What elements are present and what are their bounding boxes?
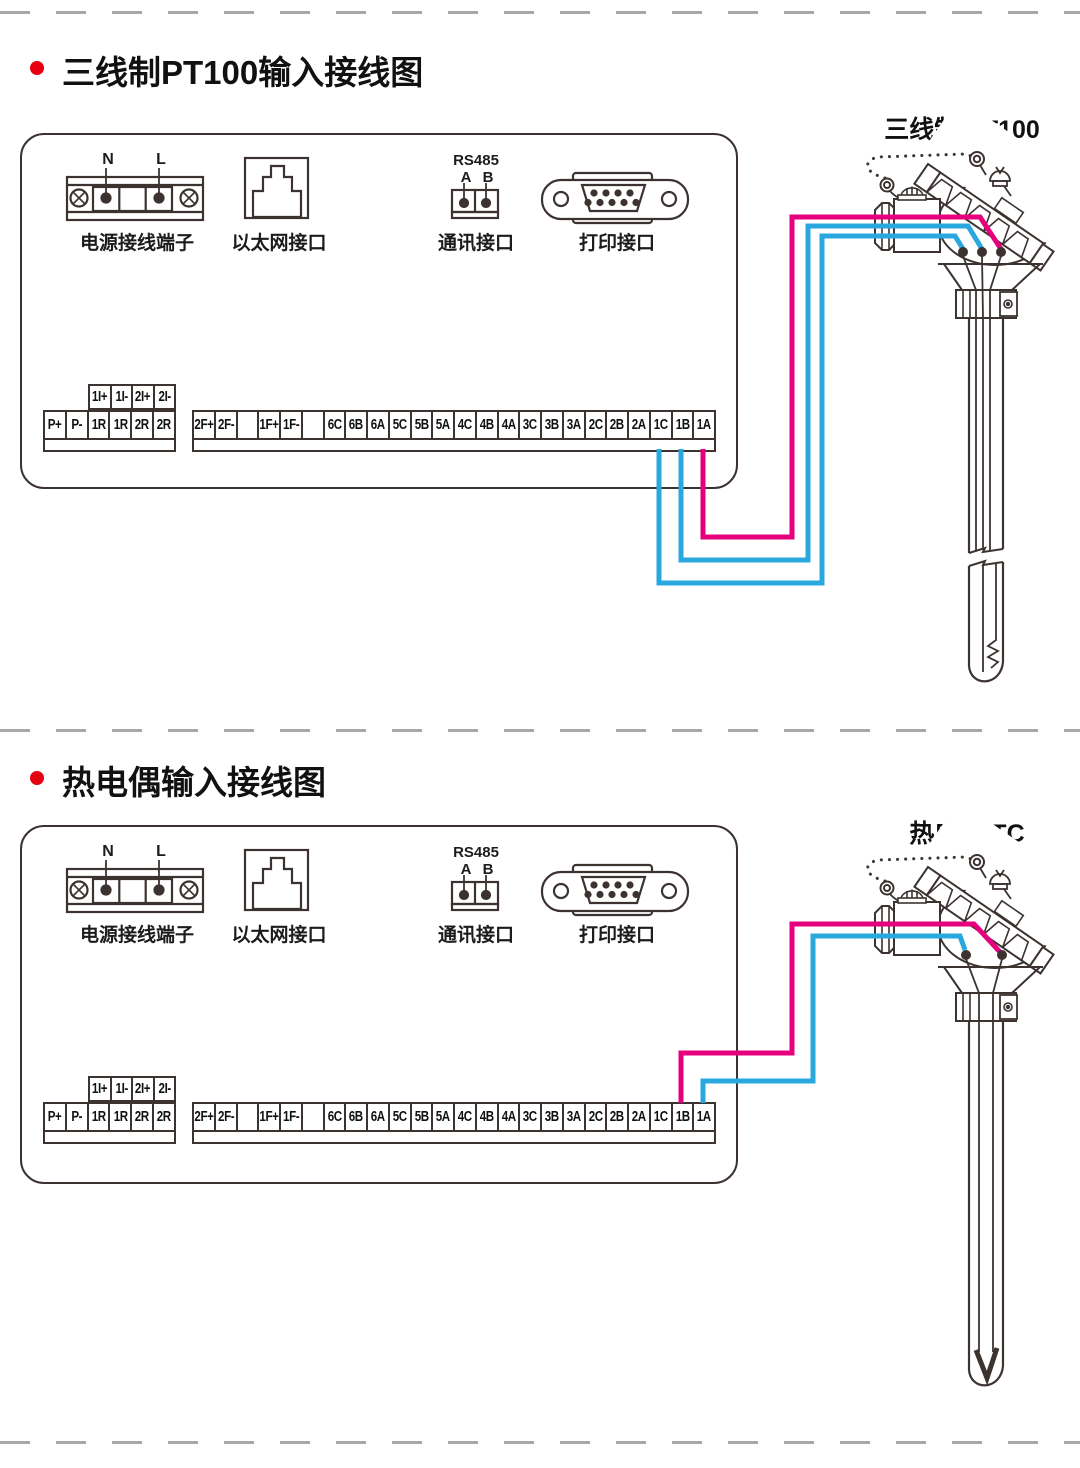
power-caption: 电源接线端子 [80,228,194,255]
section2-title: 热电偶输入接线图 [62,756,326,804]
terminal-cell [236,412,258,438]
terminal-cell: 5B [410,1104,432,1130]
sensor2-label: 热电偶 TC [909,814,1024,850]
terminal-cell: 2C [584,412,606,438]
terminal-cell: 2B [605,412,627,438]
terminal-cell: 2I- [153,1078,175,1100]
power-l-label: L [156,843,166,861]
terminal-cell: 2R [130,412,152,438]
sensor2-probe [966,959,1003,1385]
terminal-cell: 1A [692,1104,714,1130]
terminal-cell: 1R [108,1104,130,1130]
recorder-rear-panel-2: N L RS485 A B 电源接线端子 以太网接口 通讯接口 打印接口 1I+… [20,825,738,1184]
terminal-strip-right-block: 2F+2F-1F+1F-6C6B6A5C5B5A4C4B4A3C3B3A2C2B… [192,410,716,452]
terminal-cell: P+ [45,412,65,438]
terminal-cell: 2B [605,1104,627,1130]
terminal-cell: 1I- [110,1078,132,1100]
terminal-cell: P- [65,1104,87,1130]
bottom-dashed-divider [0,1441,1080,1444]
printer-caption: 打印接口 [579,920,655,947]
terminal-cell: 2F+ [194,412,214,438]
terminal-strip-left-block: P+P-1R1R2R2R [43,1102,176,1144]
rs485-b-label: B [483,861,494,878]
terminal-cell: 1F- [279,1104,301,1130]
terminal-cell: 2I+ [131,386,153,408]
terminal-cell: 3A [562,412,584,438]
comm-caption: 通讯接口 [438,920,514,947]
rs485-b-label: B [483,169,494,186]
rs485-label: RS485 [453,152,499,169]
top-dashed-divider [0,11,1080,14]
terminal-strip-upper-row: 1I+1I-2I+2I- [88,1076,176,1102]
terminal-cell: 2C [584,1104,606,1130]
terminal-cell: 3C [518,412,540,438]
sensor1-probe [963,256,1003,681]
sensor1-terminal-dots [958,247,1006,257]
terminal-cell: 5C [388,1104,410,1130]
ethernet-caption: 以太网接口 [231,228,326,255]
terminal-cell: 5A [431,1104,453,1130]
terminal-strip-left-block: P+P-1R1R2R2R [43,410,176,452]
terminal-cell: 1I+ [90,386,110,408]
section2-bullet-icon [30,771,44,785]
terminal-cell: P+ [45,1104,65,1130]
terminal-cell: 2R [152,412,174,438]
terminal-cell: 1F+ [257,412,279,438]
terminal-cell: 6A [366,1104,388,1130]
rs485-a-label: A [461,169,472,186]
middle-dashed-divider [0,729,1080,732]
terminal-cell: 1F+ [257,1104,279,1130]
ethernet-caption: 以太网接口 [231,920,326,947]
terminal-strip-right-block: 2F+2F-1F+1F-6C6B6A5C5B5A4C4B4A3C3B3A2C2B… [192,1102,716,1144]
comm-caption: 通讯接口 [438,228,514,255]
wire-1a-blue [703,936,965,1103]
terminal-cell: 2I- [153,386,175,408]
probe-tip [969,1366,1003,1385]
terminal-cell: 6A [366,412,388,438]
terminal-cell: 4A [497,412,519,438]
terminal-cell: 4C [453,1104,475,1130]
terminal-cell: 4B [475,1104,497,1130]
terminal-cell: 3B [540,1104,562,1130]
terminal-cell: 6B [344,1104,366,1130]
terminal-cell: P- [65,412,87,438]
power-caption: 电源接线端子 [80,920,194,947]
terminal-cell: 2I+ [131,1078,153,1100]
terminal-cell: 3C [518,1104,540,1130]
terminal-cell: 3A [562,1104,584,1130]
terminal-cell: 1R [108,412,130,438]
terminal-cell [236,1104,258,1130]
terminal-cell [301,412,323,438]
section1-title: 三线制PT100输入接线图 [62,46,423,94]
terminal-cell: 1B [671,1104,693,1130]
terminal-cell: 3B [540,412,562,438]
terminal-cell: 1B [671,412,693,438]
terminal-cell: 5B [410,412,432,438]
terminal-cell: 5A [431,412,453,438]
tc-junction-icon [976,1348,997,1378]
power-n-label: N [102,151,114,169]
rs485-label: RS485 [453,844,499,861]
terminal-cell: 2F+ [194,1104,214,1130]
power-n-label: N [102,843,114,861]
terminal-cell: 2F- [214,1104,236,1130]
wiring-diagram-page: { "colors":{ "wire_magenta":"#e6007e", "… [0,0,1080,1468]
terminal-cell: 1C [649,1104,671,1130]
terminal-cell: 1R [87,1104,109,1130]
wire-1a-magenta [703,217,1001,537]
probe-tip [969,662,1003,681]
terminal-cell: 2A [627,412,649,438]
terminal-cell: 1C [649,412,671,438]
terminal-cell: 2R [152,1104,174,1130]
terminal-cell: 6C [323,412,345,438]
rtd-element-icon [988,564,998,668]
terminal-cell: 5C [388,412,410,438]
terminal-cell: 2A [627,1104,649,1130]
terminal-cell: 1A [692,412,714,438]
terminal-cell: 2F- [214,412,236,438]
terminal-cell: 6C [323,1104,345,1130]
terminal-cell: 1F- [279,412,301,438]
recorder-rear-panel-1: N L RS485 A B 电源接线端子 以太网接口 通讯接口 打印接口 1I+… [20,133,738,489]
terminal-cell: 2R [130,1104,152,1130]
terminal-cell: 6B [344,412,366,438]
printer-caption: 打印接口 [579,228,655,255]
terminal-cell: 1I- [110,386,132,408]
terminal-cell: 4C [453,412,475,438]
terminal-cell: 4B [475,412,497,438]
section1-bullet-icon [30,61,44,75]
power-l-label: L [156,151,166,169]
sensor1-label: 三线制 PT100 [884,110,1040,146]
rs485-a-label: A [461,861,472,878]
terminal-cell: 4A [497,1104,519,1130]
terminal-cell: 1R [87,412,109,438]
terminal-cell [301,1104,323,1130]
sensor2-terminal-dots [961,950,1007,960]
terminal-strip-upper-row: 1I+1I-2I+2I- [88,384,176,410]
terminal-cell: 1I+ [90,1078,110,1100]
